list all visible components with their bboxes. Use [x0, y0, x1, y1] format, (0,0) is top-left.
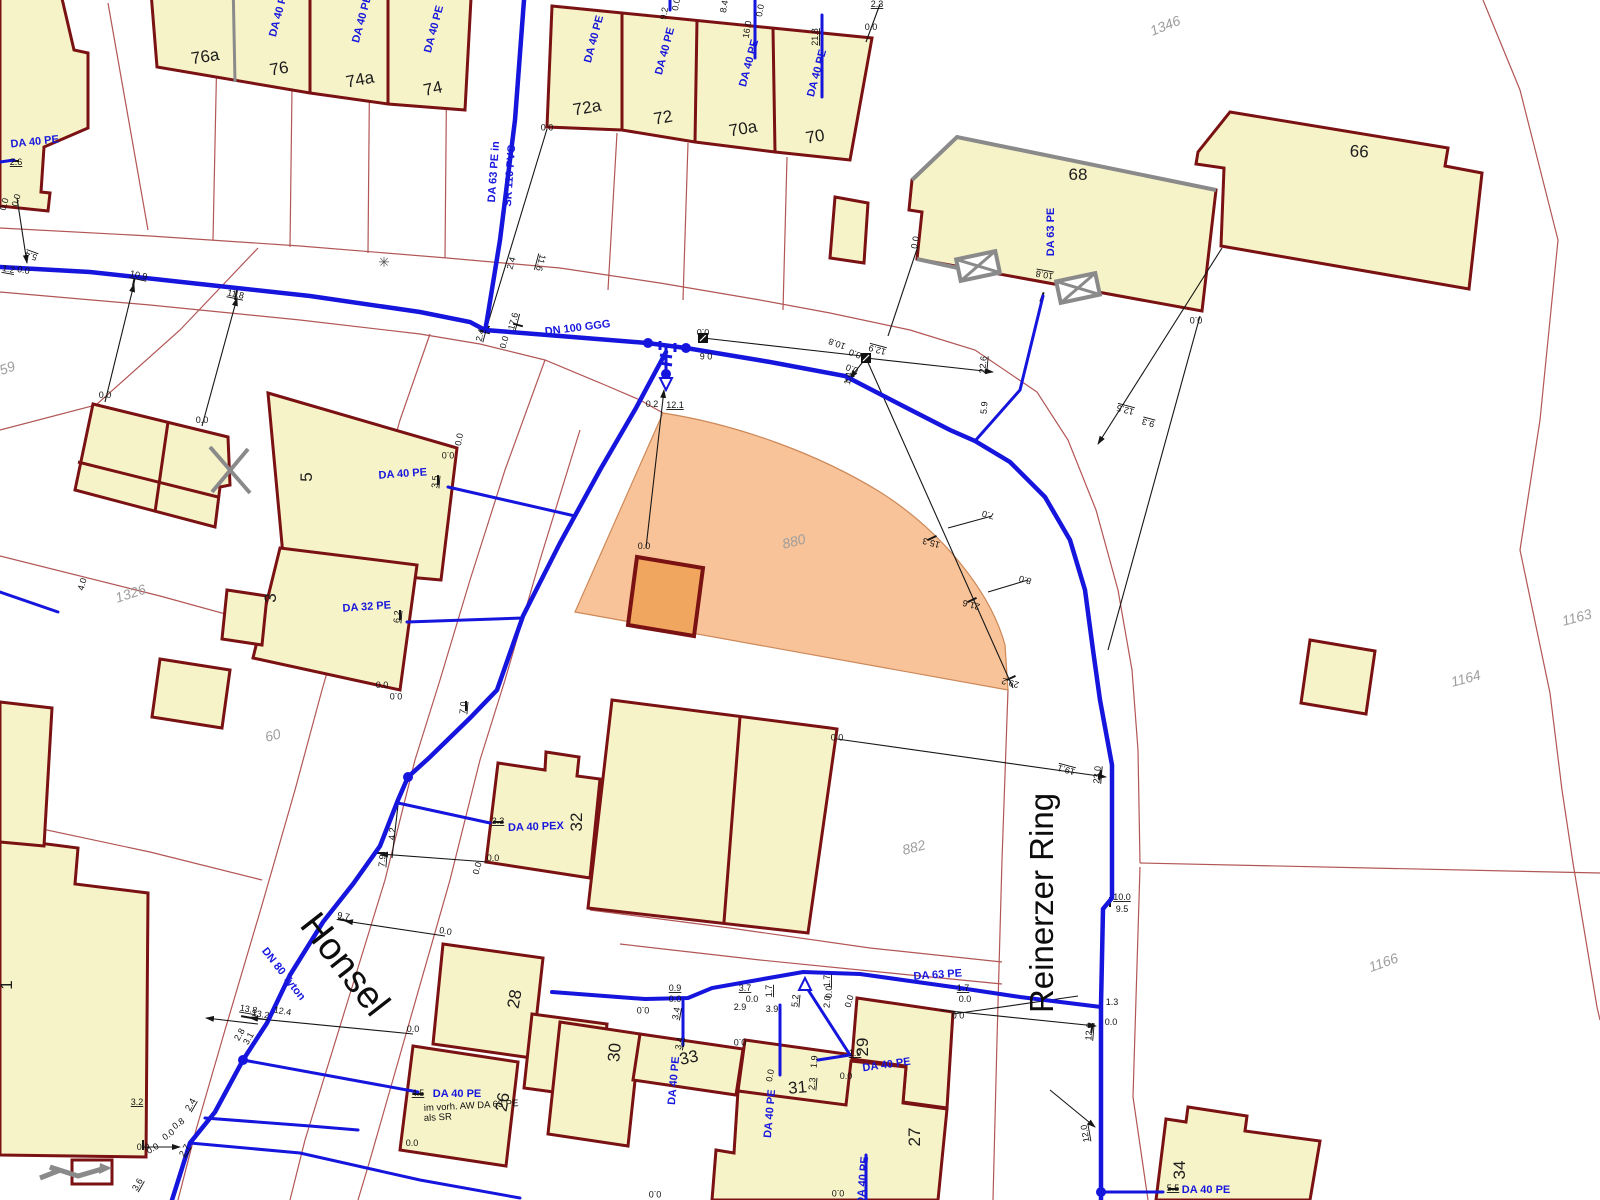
measurement-label: 0.0 [1190, 315, 1203, 325]
house-number-label: 72 [652, 107, 674, 129]
measurement-label: 9.3 [1141, 416, 1156, 429]
measurement-label: 0.0 [453, 432, 465, 446]
measurement-label: 5.5 [1167, 1183, 1180, 1193]
building [1156, 1107, 1320, 1200]
measurement-label: 0.0 [407, 1024, 420, 1034]
parcel-number-label: 1326 [113, 581, 148, 606]
building [433, 944, 543, 1058]
measurement-label: 0.0 [442, 450, 455, 460]
measurement-label: 5.9 [978, 401, 989, 414]
measurement-label: 1.9 [808, 1055, 819, 1068]
measurement-label: 0.8 [170, 1116, 186, 1131]
measurement-label: 0.6 [700, 351, 713, 361]
measurement-label: 12.5 [1115, 403, 1135, 417]
measurement-label: 0.0 [498, 335, 511, 350]
parcel-number-label: 1159 [0, 358, 17, 383]
measurement-label: 0.0 [734, 1037, 747, 1047]
building [0, 0, 88, 211]
house-number-label: 34 [1170, 1161, 1189, 1180]
measurement-label: 10.9 [129, 268, 148, 281]
measurement-label: 0.0 [670, 0, 682, 12]
measurement-label: 22.6 [977, 356, 988, 374]
measurement-label: 0.0 [959, 994, 972, 1004]
measurement-label: 2.3 [806, 1077, 817, 1090]
measurement-label: 3.6 [130, 1177, 145, 1193]
house-number-label: 32 [567, 813, 586, 832]
measurement-label: 3.4 [673, 1036, 685, 1050]
building [588, 700, 837, 933]
house-number-label: 68 [1069, 165, 1088, 184]
measurement-label: 0.0 [487, 853, 500, 863]
measurement-label: 2.9 [734, 1002, 747, 1012]
measurement-label: 1.2 [1, 263, 15, 275]
measurement-label: 5.2 [789, 994, 800, 1007]
measurement-label: 0.0 [909, 235, 921, 249]
measurement-label: 12.0 [1083, 1023, 1094, 1041]
measurement-label: 0.0 [196, 415, 209, 425]
measurement-label: 3.2 [131, 1097, 144, 1107]
house-number-label: 28 [504, 988, 526, 1010]
pipe-material-label: DA 63 PE in [486, 141, 502, 203]
pipe-material-label: DA 40 PE [1182, 1184, 1231, 1196]
pipe-material-label: DA 63 PE [913, 967, 962, 982]
measurement-label: 7.0 [981, 508, 996, 521]
measurement-label: 1.9 [849, 1048, 862, 1058]
measurement-label: 0.9 [669, 983, 682, 993]
measurement-label: 0.0 [649, 1189, 662, 1199]
pipe-line [448, 487, 575, 516]
measurement-label: 0.0 [669, 994, 682, 1004]
pipe-material-label: SR 110 PVC [502, 145, 518, 207]
measurement-label: 12.4 [273, 1005, 292, 1018]
building [1301, 640, 1375, 714]
measurement-label: 21.8 [810, 28, 820, 46]
measurement-label: 19.1 [1056, 763, 1076, 777]
measurement-label: 1.7 [822, 975, 832, 988]
street-name-label: Honsel [291, 905, 397, 1024]
pipe-material-label: DN 100 GGG [544, 318, 611, 338]
measurement-label: 2.4 [183, 1097, 198, 1113]
measurement-label: 0.0 [471, 861, 484, 876]
building [548, 1022, 640, 1146]
parcel-number-label: 60 [263, 725, 282, 745]
measurement-label: 0.0 [16, 264, 30, 276]
house-number-label: 5 [297, 472, 316, 481]
parcel-number-label: 1166 [1366, 950, 1400, 975]
measurement-label: 0.2 [646, 399, 659, 409]
measurement-label: 23.0 [1091, 766, 1102, 784]
measurement-label: 4.0 [76, 577, 89, 592]
measurement-label: 12.1 [666, 400, 684, 410]
building [830, 197, 868, 263]
measurement-label: 4.5 [412, 1088, 425, 1098]
map-canvas[interactable]: ✳1346115913266088088211641163116676a7674… [0, 0, 1600, 1200]
measurement-label: 3.4 [670, 1006, 682, 1020]
pipe-material-label: DA 40 PE [433, 1088, 482, 1100]
measurement-label: 11.8 [226, 287, 245, 300]
measurement-label: 1.7 [957, 983, 970, 993]
building [0, 702, 52, 846]
house-number-label: 70 [804, 126, 826, 148]
pipe-junction-icon [238, 1055, 248, 1065]
building [1196, 112, 1482, 289]
measurement-label: 4.2 [386, 827, 397, 840]
measurement-label: 0.0 [832, 1188, 845, 1198]
measurement-label: 6.2 [391, 610, 402, 623]
measurement-label: 8.0 [1018, 573, 1033, 586]
measurement-label: 11.6 [534, 253, 548, 272]
parcel-number-label: 1163 [1560, 605, 1593, 628]
building [0, 838, 148, 1157]
measurement-label: 0.0 [754, 3, 766, 17]
pipe-line [398, 803, 490, 823]
measurement-label: 0.0 [541, 122, 554, 132]
measurement-label: 9.2 [658, 6, 670, 20]
pipe-line [0, 592, 58, 612]
measurement-label: 3.3 [492, 816, 505, 826]
building [152, 659, 230, 728]
house-number-label: 31 [787, 1077, 808, 1098]
measurement-label: 0.0 [746, 994, 759, 1004]
house-number-label: 30 [604, 1042, 625, 1063]
measurement-label: 0.0 [865, 22, 878, 32]
measurement-label: 1.7 [764, 985, 774, 998]
hydrant-icon [799, 978, 811, 990]
house-number-label: 3 [261, 593, 280, 602]
measurement-label: 0.0 [847, 347, 862, 361]
pipe-line [407, 618, 523, 622]
measurement-label: 9.5 [1116, 904, 1129, 914]
measurement-label: 12.0 [1079, 1124, 1092, 1143]
parcel-number-label: 1346 [1148, 12, 1183, 39]
measurement-label: 1.3 [1106, 997, 1119, 1007]
house-number-label: 76 [268, 58, 290, 80]
measurement-label: 10.0 [1113, 892, 1131, 902]
map-viewport[interactable]: ✳1346115913266088088211641163116676a7674… [0, 0, 1600, 1200]
pipe-junction-icon [403, 772, 413, 782]
measurement-label: 10.8 [827, 336, 847, 351]
hydrant-icon [660, 378, 672, 390]
measurement-label: 3.5 [429, 475, 440, 488]
measurement-label: 0.0 [637, 1005, 650, 1015]
house-number-label: 74 [422, 77, 444, 100]
measurement-label: 0.0 [406, 1138, 419, 1148]
measurement-label: 2.4 [474, 328, 487, 343]
measurement-label: 3.7 [739, 983, 752, 993]
measurement-label: 7.9 [376, 854, 387, 867]
measurement-label: 0.0 [390, 691, 403, 701]
measurement-label: 8.4 [718, 0, 730, 14]
measurement-label: 0.0 [376, 680, 389, 690]
measurement-label: 17.6 [506, 311, 520, 331]
measurement-label: 2.3 [871, 0, 884, 9]
pipe-junction-icon [681, 343, 691, 353]
measurement-label: 0.0 [831, 732, 844, 742]
parcel-number-label: 882 [900, 836, 927, 858]
measurement-label: 0.0 [764, 1068, 776, 1082]
house-number-label: 27 [905, 1128, 924, 1147]
pipe-junction-icon [643, 338, 653, 348]
house-number-label: 1 [0, 980, 16, 989]
pipe-material-label: DA 40 PEX [508, 820, 565, 834]
measurement-label: 7.0 [457, 701, 468, 714]
measurement-label: 0.0 [843, 994, 856, 1009]
measurement-label: 2.6 [10, 157, 23, 167]
highlighted-building [628, 557, 703, 636]
measurement-label: 3.9 [766, 1004, 779, 1014]
highlighted-parcel-880 [575, 413, 1008, 690]
measurement-label: 2.4 [505, 256, 518, 271]
pipe-junction-icon [1096, 1187, 1106, 1197]
measurement-label: 0.0 [638, 541, 651, 551]
measurement-label: 0.0 [1105, 1017, 1118, 1027]
measurement-label: 0.0 [697, 327, 710, 337]
measurement-label: 2.0 [821, 995, 832, 1008]
measurement-label: 0.0 [438, 925, 452, 937]
measurement-label: 9.7 [336, 910, 350, 922]
note-label: als SR [424, 1112, 453, 1124]
measurement-label: 0.0 [99, 390, 112, 400]
measurement-label: 0.0 [840, 1071, 853, 1081]
measurement-label: 0.0 [952, 1010, 965, 1020]
parcel-number-label: 1164 [1449, 666, 1482, 689]
street-name-label: Reinerzer Ring [1023, 793, 1060, 1013]
house-number-label: 66 [1349, 142, 1369, 162]
streetlight-icon: ✳ [378, 254, 390, 270]
pipe-line [205, 1118, 358, 1130]
pipe-line [243, 1060, 418, 1092]
pipe-material-label: DA 63 PE [1045, 208, 1057, 257]
